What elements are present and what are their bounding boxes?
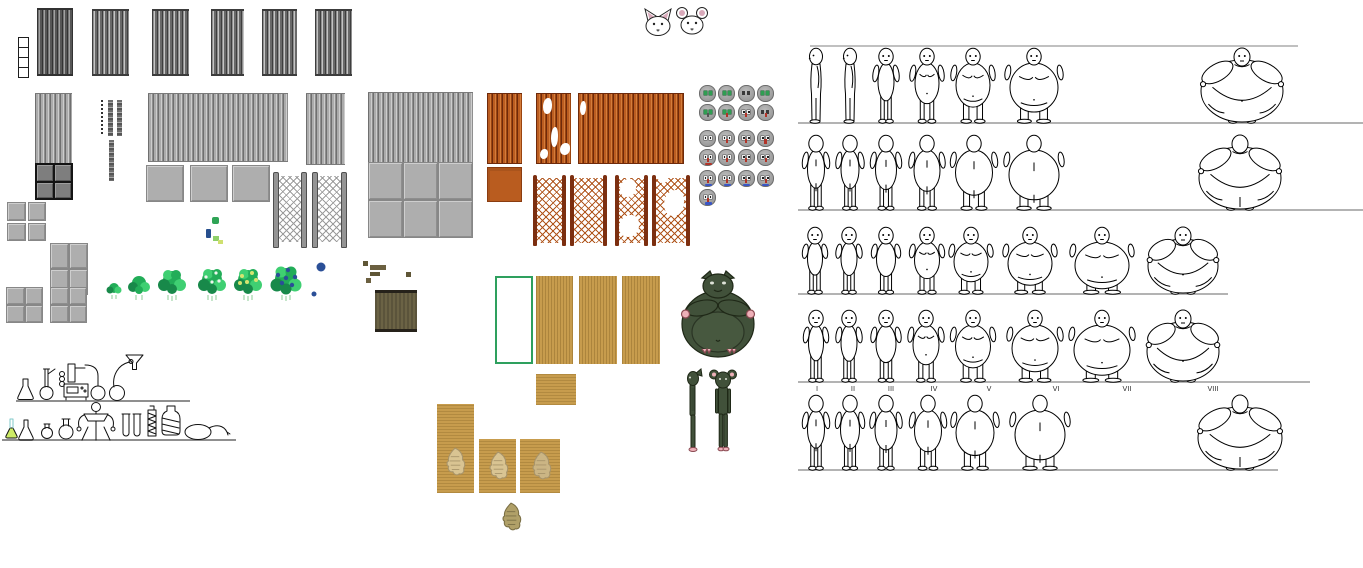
mouse-head-pointy-ears [645, 9, 671, 36]
stone-tile [25, 287, 44, 305]
face-sprite [757, 170, 774, 187]
figure-class-label: IV [931, 385, 938, 393]
mouse-head-round-ears [677, 8, 708, 35]
face-nose [707, 113, 709, 117]
stone-tile [50, 243, 69, 269]
face-sprite [699, 189, 716, 206]
face-sprite [738, 130, 755, 147]
wood-panel [579, 276, 617, 364]
figure-front [949, 310, 996, 382]
face-eye [704, 136, 707, 140]
goblin-small-side [688, 369, 703, 452]
figure-back [835, 135, 866, 210]
olive-texture-panel [375, 290, 417, 332]
corrugated-metal-panel [152, 9, 189, 76]
corrugated-metal-panel [35, 93, 72, 165]
face-sprite [757, 104, 774, 121]
figure-front [907, 310, 945, 382]
figure-class-label: V [987, 385, 992, 393]
rust-corrugated-panel [487, 93, 522, 164]
goblin-small-pair [681, 368, 743, 454]
figure-back [834, 395, 866, 470]
face-eye [766, 155, 769, 159]
erlenmeyer-flask [19, 420, 34, 440]
face-eye [709, 136, 712, 140]
damage-patch [560, 143, 570, 155]
stone-tile-block [368, 162, 473, 238]
stone-tile [69, 243, 88, 269]
stone-tile [28, 223, 47, 242]
face-sprite [738, 170, 755, 187]
face-nose [726, 179, 728, 183]
horizontal-retort [185, 425, 230, 440]
face-sprite [718, 130, 735, 147]
figure-front [909, 48, 945, 123]
corrugated-metal-panel-wide [368, 92, 473, 164]
figure-back [1003, 135, 1065, 210]
figure-huge-front [1198, 48, 1286, 123]
stone-tile [368, 200, 403, 238]
face-sprite [738, 85, 755, 102]
test-tubes [122, 414, 141, 436]
goblin-hand-right [747, 310, 755, 318]
leaf-decal [529, 450, 553, 482]
face-eye [761, 91, 764, 95]
stone-tile [7, 202, 26, 221]
stone-tile [190, 165, 228, 202]
stone-tile-block [7, 202, 46, 241]
face-eye [709, 195, 712, 199]
face-sprite [699, 170, 716, 187]
fence-post [686, 175, 690, 246]
face-nose [707, 179, 709, 183]
fence-post [312, 172, 318, 248]
fence-post [603, 175, 607, 246]
figure-front [1069, 227, 1135, 294]
bush-sprite [158, 270, 186, 301]
face-eye [747, 155, 750, 159]
chainlink-mesh [536, 178, 563, 243]
retort [110, 360, 134, 401]
figure-back [801, 135, 831, 210]
face-nose [726, 139, 728, 143]
metal-plate [37, 183, 53, 199]
face-nose [726, 158, 728, 162]
face-mouth [705, 184, 712, 186]
stone-tile [403, 162, 438, 200]
green-liquid-flask [6, 419, 17, 438]
corrugated-metal-panel [92, 9, 129, 76]
stone-tile [438, 200, 473, 238]
face-eye [747, 136, 750, 140]
pixel-cluster-yellow [218, 240, 223, 244]
stone-tile [403, 200, 438, 238]
distillation-apparatus [60, 364, 106, 400]
face-sprite [718, 85, 735, 102]
figure-front [1004, 48, 1064, 123]
face-nose [745, 113, 747, 117]
figure-huge-back [1195, 395, 1284, 470]
goblin-large-sprite [680, 270, 758, 360]
figure-class-label: VIII [1208, 385, 1219, 393]
face-nose [726, 113, 728, 117]
stone-tile-block [6, 287, 43, 323]
metal-plate [55, 183, 71, 199]
chainlink-fence-rust [570, 175, 607, 246]
face-sprite [699, 149, 716, 166]
face-sprite [718, 149, 735, 166]
berry-dot [317, 263, 326, 272]
erlenmeyer-flask [18, 379, 34, 400]
face-sprite [718, 170, 735, 187]
stone-tile [69, 287, 88, 305]
face-nose [745, 158, 747, 162]
zigzag-strip [108, 100, 113, 136]
figure-front [870, 310, 902, 382]
wood-panel-leaf [479, 439, 516, 493]
figure-class-label: III [888, 385, 894, 393]
face-eye [742, 91, 745, 95]
face-sprite [699, 130, 716, 147]
coil-condenser [148, 406, 156, 436]
figure-huge-front [1144, 310, 1222, 382]
leaf-decal [443, 446, 467, 478]
face-eye [766, 91, 769, 95]
goblin-small-front [710, 370, 737, 451]
damage-patch [551, 127, 558, 147]
face-eye [728, 110, 731, 114]
face-eye [704, 91, 707, 95]
figure-back [869, 135, 903, 210]
bush-sprite [128, 276, 150, 300]
figure-front [802, 310, 829, 382]
stone-tile [69, 305, 88, 323]
bush-sprite-yellow-flowers [234, 269, 262, 301]
figure-front [1002, 227, 1058, 294]
stone-tile [6, 287, 25, 305]
body-type-reference-chart: IIIIIIIVVVIVIIVIII [790, 30, 1363, 505]
face-eye [709, 110, 712, 114]
round-flask [59, 419, 73, 439]
damage-patch [540, 149, 548, 159]
fence-post [562, 175, 566, 246]
corrugated-metal-panel [306, 93, 345, 165]
figure-front [835, 310, 863, 382]
damage-patch [580, 101, 586, 115]
face-nose [745, 179, 747, 183]
face-mouth [705, 202, 712, 205]
figure-back [801, 395, 831, 470]
figure-front [870, 227, 901, 294]
metal-plate [55, 165, 71, 181]
stone-tile [146, 165, 184, 202]
face-eye [766, 110, 769, 114]
pixel-cluster-olive [406, 272, 411, 277]
figure-back [908, 395, 947, 470]
figure-side [809, 48, 823, 123]
fence-post [570, 175, 574, 246]
face-nose [764, 139, 768, 144]
chainlink-fence-gray [312, 172, 347, 246]
leaf-decal-standalone [499, 501, 523, 533]
figure-back [950, 395, 1000, 470]
bush-sprite-white-flowers [198, 269, 226, 301]
stone-tile [7, 223, 26, 242]
fence-post [652, 175, 656, 246]
fence-post [644, 175, 648, 246]
corrugated-metal-panel [37, 8, 73, 76]
stone-tile [368, 162, 403, 200]
face-eye [709, 155, 712, 159]
film-strip-cell [18, 67, 29, 78]
long-neck-flask [40, 369, 55, 400]
chainlink-fence-rust-damaged [615, 175, 648, 246]
wood-panel [536, 276, 573, 364]
pixel-cluster-olive [363, 261, 368, 266]
figure-front [835, 227, 863, 294]
figure-front [801, 227, 828, 294]
face-sprite [699, 85, 716, 102]
bush-sprite-blue-berries [271, 267, 302, 302]
face-sprite [718, 104, 735, 121]
face-eye [747, 110, 750, 114]
leaf-decal [486, 450, 510, 482]
bush-sprite [107, 283, 122, 299]
corrugated-metal-panel [211, 9, 244, 76]
face-mouth [743, 184, 750, 186]
face-eye [747, 176, 750, 180]
corrugated-metal-panel-wide [148, 93, 288, 162]
face-eye [747, 91, 750, 95]
goblin-head [703, 274, 733, 298]
lab-glassware-shelf-bottom [2, 398, 240, 444]
wood-panel-leaf [437, 404, 474, 493]
face-sprite [699, 104, 716, 121]
wood-panel-leaf [520, 439, 560, 493]
sprite-sheet-canvas: IIIIIIIVVVIVIIVIII [0, 0, 1363, 568]
zigzag-strip [101, 100, 103, 136]
berry-dot [312, 292, 317, 297]
face-nose [707, 158, 709, 162]
stone-tile [6, 305, 25, 323]
figure-class-label: II [851, 385, 855, 393]
fence-post [273, 172, 279, 248]
pixel-cluster-olive [370, 272, 380, 276]
round-flask-small [42, 424, 53, 439]
tripod-burner-stand [77, 403, 115, 441]
wood-tile-small [536, 374, 576, 405]
face-sprite [757, 130, 774, 147]
face-eye [723, 91, 726, 95]
pixel-cluster-olive [366, 278, 371, 283]
metal-plate-grid [35, 163, 73, 200]
face-sprite [738, 149, 755, 166]
figure-front [948, 227, 994, 294]
pixel-cluster-olive [370, 265, 386, 270]
figure-back [908, 135, 946, 210]
stone-tile [438, 162, 473, 200]
face-sprite [738, 104, 755, 121]
face-eye [728, 155, 731, 159]
face-eye [728, 91, 731, 95]
chainlink-mesh [573, 178, 604, 243]
chainlink-mesh [276, 176, 304, 242]
face-nose [765, 179, 767, 183]
figure-huge-front [1145, 227, 1221, 294]
film-strip [18, 37, 29, 77]
pixel-cluster-blue [206, 229, 211, 238]
metal-plate [37, 165, 53, 181]
figure-front [950, 48, 996, 123]
zigzag-strip [109, 140, 114, 181]
chainlink-fence-rust [533, 175, 566, 246]
face-eye [709, 176, 712, 180]
stone-tile [50, 305, 69, 323]
mouse-head-pair [643, 6, 709, 38]
pixel-cluster-green [212, 217, 219, 224]
fence-post [533, 175, 537, 246]
stone-tile [25, 305, 44, 323]
face-nose [765, 113, 767, 117]
face-sprite [757, 149, 774, 166]
chainlink-mesh [315, 176, 344, 242]
figure-huge-back [1196, 135, 1284, 210]
face-eye [728, 176, 731, 180]
bush-row [100, 255, 340, 307]
goblin-hand-left [682, 310, 690, 318]
figure-back [869, 395, 904, 470]
figure-back [1009, 395, 1071, 470]
stone-tile [28, 202, 47, 221]
figure-front [872, 48, 901, 123]
figure-side [843, 48, 857, 123]
goblin-belly [692, 312, 744, 352]
figure-front [908, 227, 945, 294]
figure-class-label: VII [1123, 385, 1132, 393]
fence-post [615, 175, 619, 246]
fence-post [341, 172, 347, 248]
face-mouth [724, 184, 731, 186]
face-eye [709, 91, 712, 95]
figure-front [1068, 310, 1136, 382]
face-sprite [757, 85, 774, 102]
stone-tile [50, 287, 69, 305]
chainlink-fence-rust-damaged [652, 175, 690, 246]
figure-back [949, 135, 998, 210]
face-nose [765, 158, 767, 162]
fence-post [301, 172, 307, 248]
damage-patch [543, 98, 552, 114]
lab-glassware-shelf-top [14, 352, 196, 404]
face-mouth [762, 184, 769, 186]
rust-corrugated-panel-damaged [536, 93, 571, 164]
spiral-wrapped-flask [162, 406, 180, 435]
chainlink-fence-gray [273, 172, 307, 246]
figure-class-label: I [816, 385, 818, 393]
face-mouth [705, 163, 712, 165]
rust-corrugated-panel-wide [578, 93, 684, 164]
corrugated-metal-panel [315, 9, 352, 76]
face-eye [766, 176, 769, 180]
face-eye [728, 136, 731, 140]
zigzag-strip [117, 100, 122, 136]
rust-tile [487, 167, 522, 202]
corrugated-metal-panel [262, 9, 297, 76]
stone-tile-block [50, 287, 87, 323]
figure-front [1006, 310, 1064, 382]
face-nose [745, 139, 747, 143]
wood-panel-outline [495, 276, 533, 364]
figure-class-label: VI [1053, 385, 1060, 393]
wood-panel [622, 276, 660, 364]
stone-tile [232, 165, 270, 202]
